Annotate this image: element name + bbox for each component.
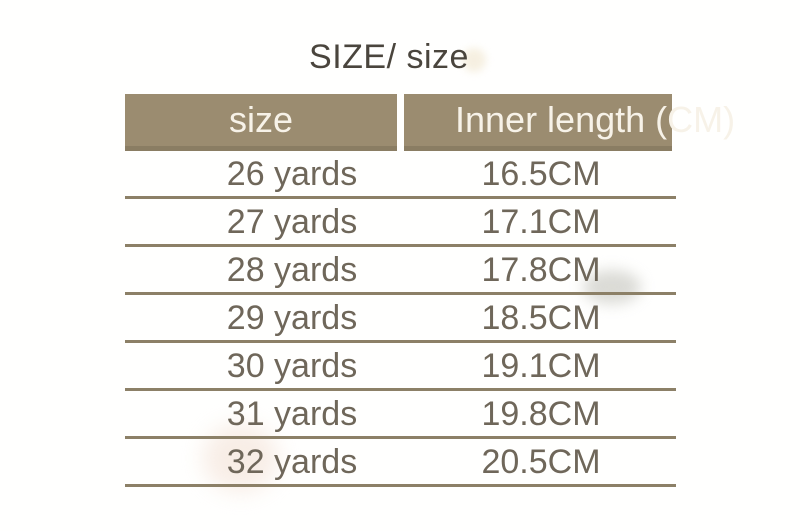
table-row: 29 yards 18.5CM	[125, 295, 676, 343]
size-chart-image: SIZE/ size size Inner length (CM) 26 yar…	[0, 0, 800, 531]
inner-length-cell: 17.1CM	[406, 199, 676, 245]
header-cell-inner-length: Inner length (CM)	[404, 94, 672, 151]
table-row: 28 yards 17.8CM	[125, 247, 676, 295]
inner-length-cell: 19.1CM	[406, 343, 676, 389]
table-row: 30 yards 19.1CM	[125, 343, 676, 391]
table-row: 26 yards 16.5CM	[125, 151, 676, 199]
table-row: 32 yards 20.5CM	[125, 439, 676, 487]
inner-length-cell: 19.8CM	[406, 391, 676, 437]
inner-length-cell: 18.5CM	[406, 295, 676, 341]
header-cell-size: size	[125, 94, 397, 151]
table-row: 27 yards 17.1CM	[125, 199, 676, 247]
header-label-size: size	[229, 99, 293, 141]
inner-length-cell: 20.5CM	[406, 439, 676, 485]
table-row: 31 yards 19.8CM	[125, 391, 676, 439]
inner-length-cell: 16.5CM	[406, 151, 676, 197]
inner-length-cell: 17.8CM	[406, 247, 676, 293]
table-header: size Inner length (CM)	[125, 94, 676, 151]
table-body: 26 yards 16.5CM 27 yards 17.1CM 28 yards…	[125, 151, 676, 487]
header-label-inner-length: Inner length (CM)	[455, 94, 735, 146]
chart-title: SIZE/ size	[125, 38, 653, 77]
